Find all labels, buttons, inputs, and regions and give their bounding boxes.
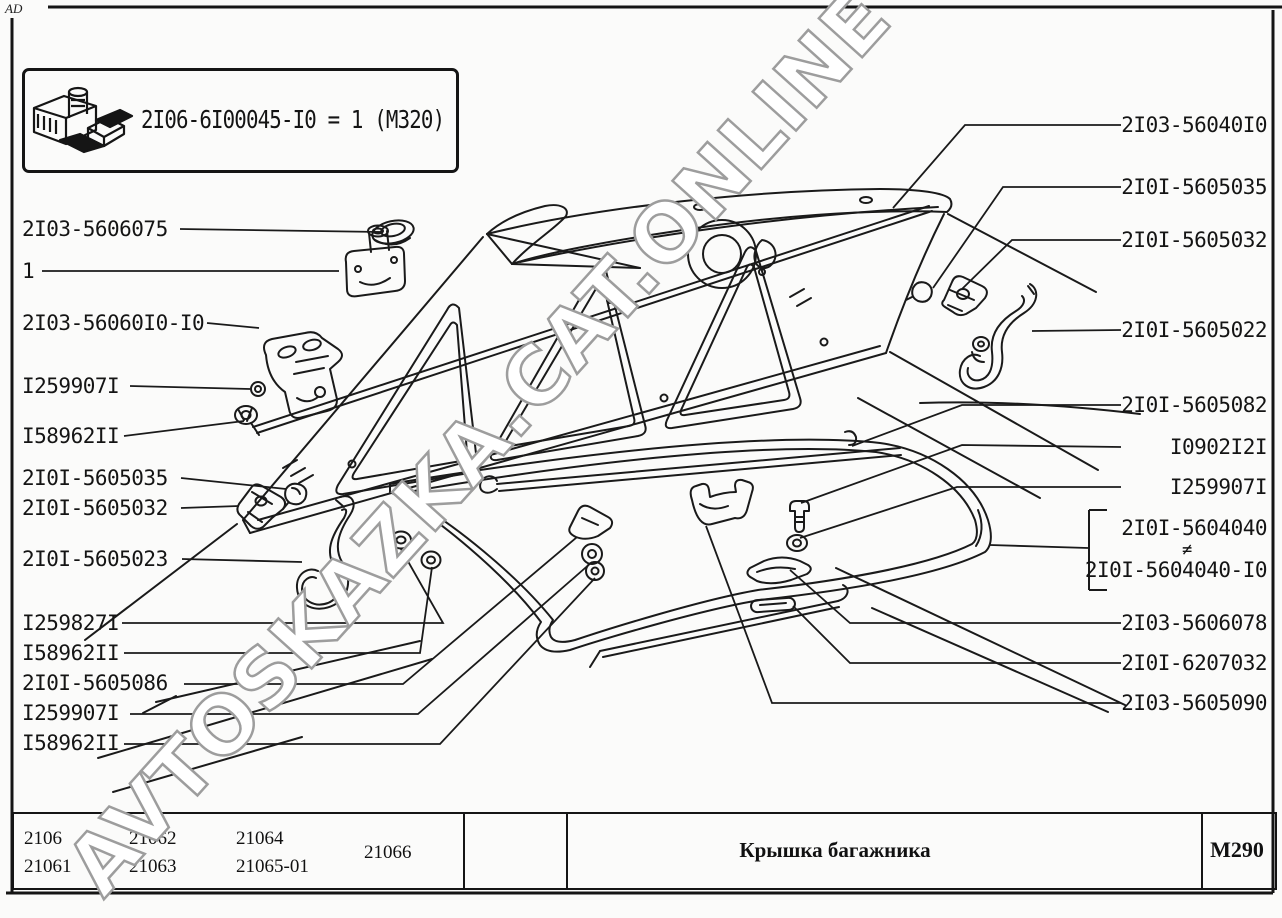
applicability-text: 2I06-6I00045-I0 = 1 (М320) (141, 105, 444, 134)
model-cell: 21064 (236, 828, 284, 850)
sheet-code: М290 (1203, 837, 1271, 863)
part-number-label: I58962II (22, 425, 119, 447)
part-number-label: I259827I (22, 612, 119, 634)
part-number-label: 2I03-56060I0-I0 (22, 312, 204, 334)
part-number-label: 2I0I-5605032 (1121, 229, 1267, 251)
part-number-label: 2I03-5606075 (22, 218, 168, 240)
part-number-label: 2I0I-5605023 (22, 548, 168, 570)
part-number-label: 2I0I-5605032 (22, 497, 168, 519)
part-number-label: I0902I2I (1170, 436, 1267, 458)
part-number-label: 2I0I-5605035 (1121, 176, 1267, 198)
applicability-info-box: 2I06-6I00045-I0 = 1 (М320) (22, 68, 459, 173)
part-number-label: 2I03-5605090 (1121, 692, 1267, 714)
model-cell: 21065-01 (236, 856, 309, 878)
scan-corner-mark: AD (5, 1, 22, 17)
item-number-label: 1 (22, 260, 34, 282)
part-number-label: 2I03-5606078 (1121, 612, 1267, 634)
part-number-label: I259907I (22, 702, 119, 724)
part-number-label: I259907I (1170, 476, 1267, 498)
model-cell: 21066 (364, 842, 412, 864)
part-number-label: 2I0I-5605086 (22, 672, 168, 694)
table-divider (463, 814, 465, 888)
part-number-label: 2I03-56040I0 (1121, 114, 1267, 136)
part-number-label: I259907I (22, 375, 119, 397)
part-number-label: 2I0I-5605035 (22, 467, 168, 489)
part-number-label: I58962II (22, 642, 119, 664)
part-number-label: 2I0I-5604040 (1121, 517, 1267, 539)
part-number-label: 2I0I-5605022 (1121, 319, 1267, 341)
part-number-label: 2I0I-5604040-I0 (1085, 559, 1267, 581)
part-number-label: 2I0I-6207032 (1121, 652, 1267, 674)
part-number-label: I58962II (22, 732, 119, 754)
part-number-label: 2I0I-5605082 (1121, 394, 1267, 416)
page-title: Крышка багажника (466, 838, 1204, 863)
